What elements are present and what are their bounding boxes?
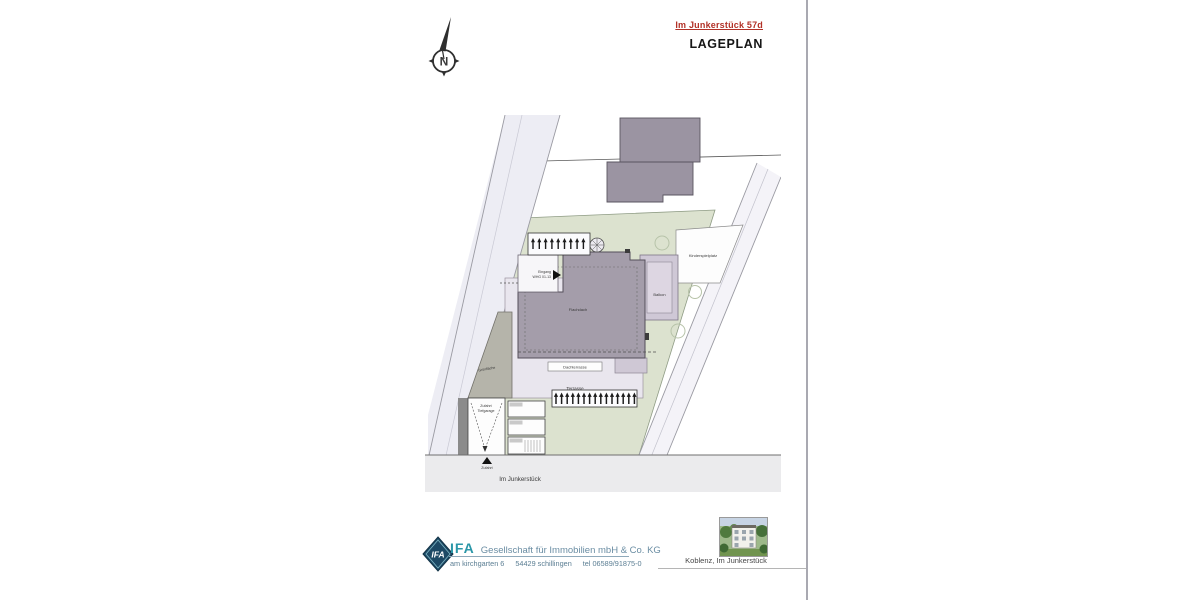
building-mark <box>625 249 630 253</box>
label-ramp-line1: Zufahrt <box>480 404 491 408</box>
label-balkon: Balkon <box>653 292 665 297</box>
footer-divider <box>449 556 629 557</box>
parking-stalls <box>508 401 545 454</box>
tree-icon <box>689 286 702 299</box>
project-photo <box>719 517 768 557</box>
project-address: Im Junkerstück 57d <box>675 20 763 30</box>
label-ramp-line2: Tiefgarage <box>477 409 494 413</box>
company-street: am kirchgarten 6 <box>450 559 504 568</box>
company-name: Gesellschaft für Immobilien mbH & Co. KG <box>481 545 661 556</box>
bike-rack-bottom <box>552 390 637 407</box>
bike-rack-top <box>528 233 590 255</box>
building-mark <box>645 333 649 340</box>
company-address-line: am kirchgarten 6 54429 schillingen tel 0… <box>450 559 642 568</box>
plan-header: Im Junkerstück 57d LAGEPLAN <box>675 20 763 51</box>
label-eingang-whg: WHG 01-13 <box>533 275 552 279</box>
scan-page-edge <box>806 0 808 600</box>
neighbor-building <box>607 118 700 202</box>
photo-caption-divider <box>658 568 806 569</box>
label-flachdach: Flachdach <box>569 307 587 312</box>
company-abbrev: IFA <box>450 540 475 556</box>
garage-ramp: Zufahrt Tiefgarage <box>468 398 505 455</box>
street-band <box>425 455 781 492</box>
ramp-wall <box>458 398 468 458</box>
company-name-line: IFA Gesellschaft für Immobilien mbH & Co… <box>450 540 661 556</box>
north-arrow-icon: N <box>424 14 468 90</box>
spiral-stair-icon <box>590 238 604 252</box>
street-name: Im Junkerstück <box>499 476 542 483</box>
building-se-block <box>615 358 647 373</box>
label-eingang: Eingang <box>538 270 551 274</box>
compass-needle <box>440 17 452 52</box>
compass-letter: N <box>440 55 449 69</box>
site-plan-drawing: Kinderspielplatz Balkon Flachdach Eingan… <box>425 115 781 492</box>
balcony-inner <box>647 262 672 313</box>
label-kinderspielplatz: Kinderspielplatz <box>689 253 717 258</box>
logo-letters: IFA <box>431 550 444 560</box>
label-dachterrasse: Dachterrasse <box>563 365 588 370</box>
photo-caption: Koblenz, Im Junkerstück <box>680 556 772 565</box>
page-title: LAGEPLAN <box>675 37 763 51</box>
company-phone: tel 06589/91875-0 <box>583 559 642 568</box>
scanned-site-plan-page: Im Junkerstück 57d LAGEPLAN N <box>0 0 1200 600</box>
label-zufahrt: Zufahrt <box>481 466 492 470</box>
company-city: 54429 schillingen <box>515 559 571 568</box>
